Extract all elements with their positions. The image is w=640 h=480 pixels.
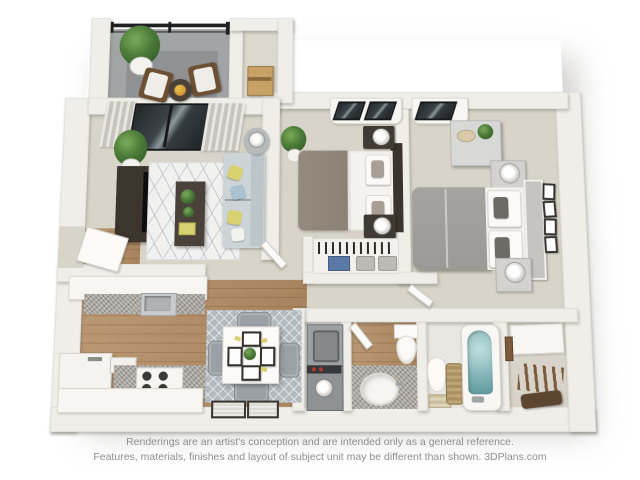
placemat-north — [242, 331, 261, 346]
bed2-duvet — [412, 187, 492, 270]
dryer-button-red2 — [319, 367, 323, 371]
bathtub-faucet — [472, 396, 484, 402]
storage-box-tape — [247, 77, 271, 81]
sofa-backrest — [250, 155, 264, 247]
dining-chair-right — [279, 343, 300, 378]
bed1-pillow-accent-top — [371, 160, 384, 177]
coffee-table-book — [178, 222, 195, 235]
dining-napkin-c — [261, 367, 268, 372]
disclaimer-line-1: Renderings are an artist's conception an… — [0, 435, 640, 450]
sofa-pillow-yellow-bottom — [226, 210, 242, 226]
sofa-pillow-white — [231, 228, 245, 242]
kitchen-fridge-handles — [88, 357, 102, 361]
dining-centerpiece — [244, 348, 256, 360]
balcony-railing-post-left — [111, 22, 114, 33]
kitchen-lower-cabinets — [57, 388, 203, 413]
dryer-gauge — [316, 380, 332, 397]
bedroom2-dresser-tray — [457, 130, 476, 142]
wall-frame-4 — [544, 236, 558, 253]
bedroom2-window-pane — [414, 101, 457, 120]
bathtub-water — [467, 330, 493, 394]
bed2-pillow-accent-top — [493, 197, 509, 218]
wall-frame-2 — [542, 201, 556, 218]
disclaimer-line-2: Features, materials, finishes and layout… — [0, 450, 640, 465]
kitchen-fridge — [58, 353, 113, 392]
curtain-right — [201, 103, 246, 150]
dryer-button-red — [312, 367, 316, 371]
wall-frame-1 — [542, 183, 555, 200]
storage-box — [247, 66, 273, 96]
balcony-left-wall — [88, 18, 111, 103]
closet1-hanging-clothes — [318, 242, 392, 254]
bed1-duvet — [298, 151, 348, 231]
bathroom1-faucet — [396, 382, 404, 386]
bed2-lamp-top — [500, 164, 519, 182]
side-table-lamp — [249, 133, 264, 147]
hall-bath-band-wall — [293, 308, 578, 322]
entry-mat-right — [247, 401, 279, 419]
sofa-cushion-line — [225, 199, 251, 201]
closet2-mirror — [505, 337, 514, 362]
balcony-railing-post-mid — [168, 22, 171, 33]
bedroom2-dresser — [450, 120, 502, 166]
placemat-west — [227, 347, 243, 367]
bathroom1-sink — [360, 373, 399, 406]
closet1-basket-a — [356, 256, 375, 271]
kitchen-sink-basin — [144, 296, 171, 311]
bed1-lamp-top — [373, 129, 390, 145]
entry-mat-left — [211, 401, 246, 419]
bed1-lamp-bottom — [374, 218, 391, 235]
storage-right-wall — [277, 18, 293, 103]
placemat-south — [241, 365, 261, 381]
closet1-blue-box — [328, 256, 350, 271]
washer-door — [313, 330, 339, 362]
bed2-pillow-accent-bottom — [494, 237, 510, 259]
closet1-basket-b — [378, 256, 397, 271]
placemat-east — [260, 347, 275, 367]
balcony-railing-post-right — [226, 22, 230, 35]
floorplan-rendering — [0, 13, 640, 445]
disclaimer-text: Renderings are an artist's conception an… — [0, 435, 640, 465]
bedroom2-dresser-plant — [477, 124, 493, 139]
wall-frame-3 — [544, 218, 557, 235]
closet2-wall-cabinet — [510, 323, 565, 354]
bed2-lamp-bottom — [505, 263, 525, 282]
